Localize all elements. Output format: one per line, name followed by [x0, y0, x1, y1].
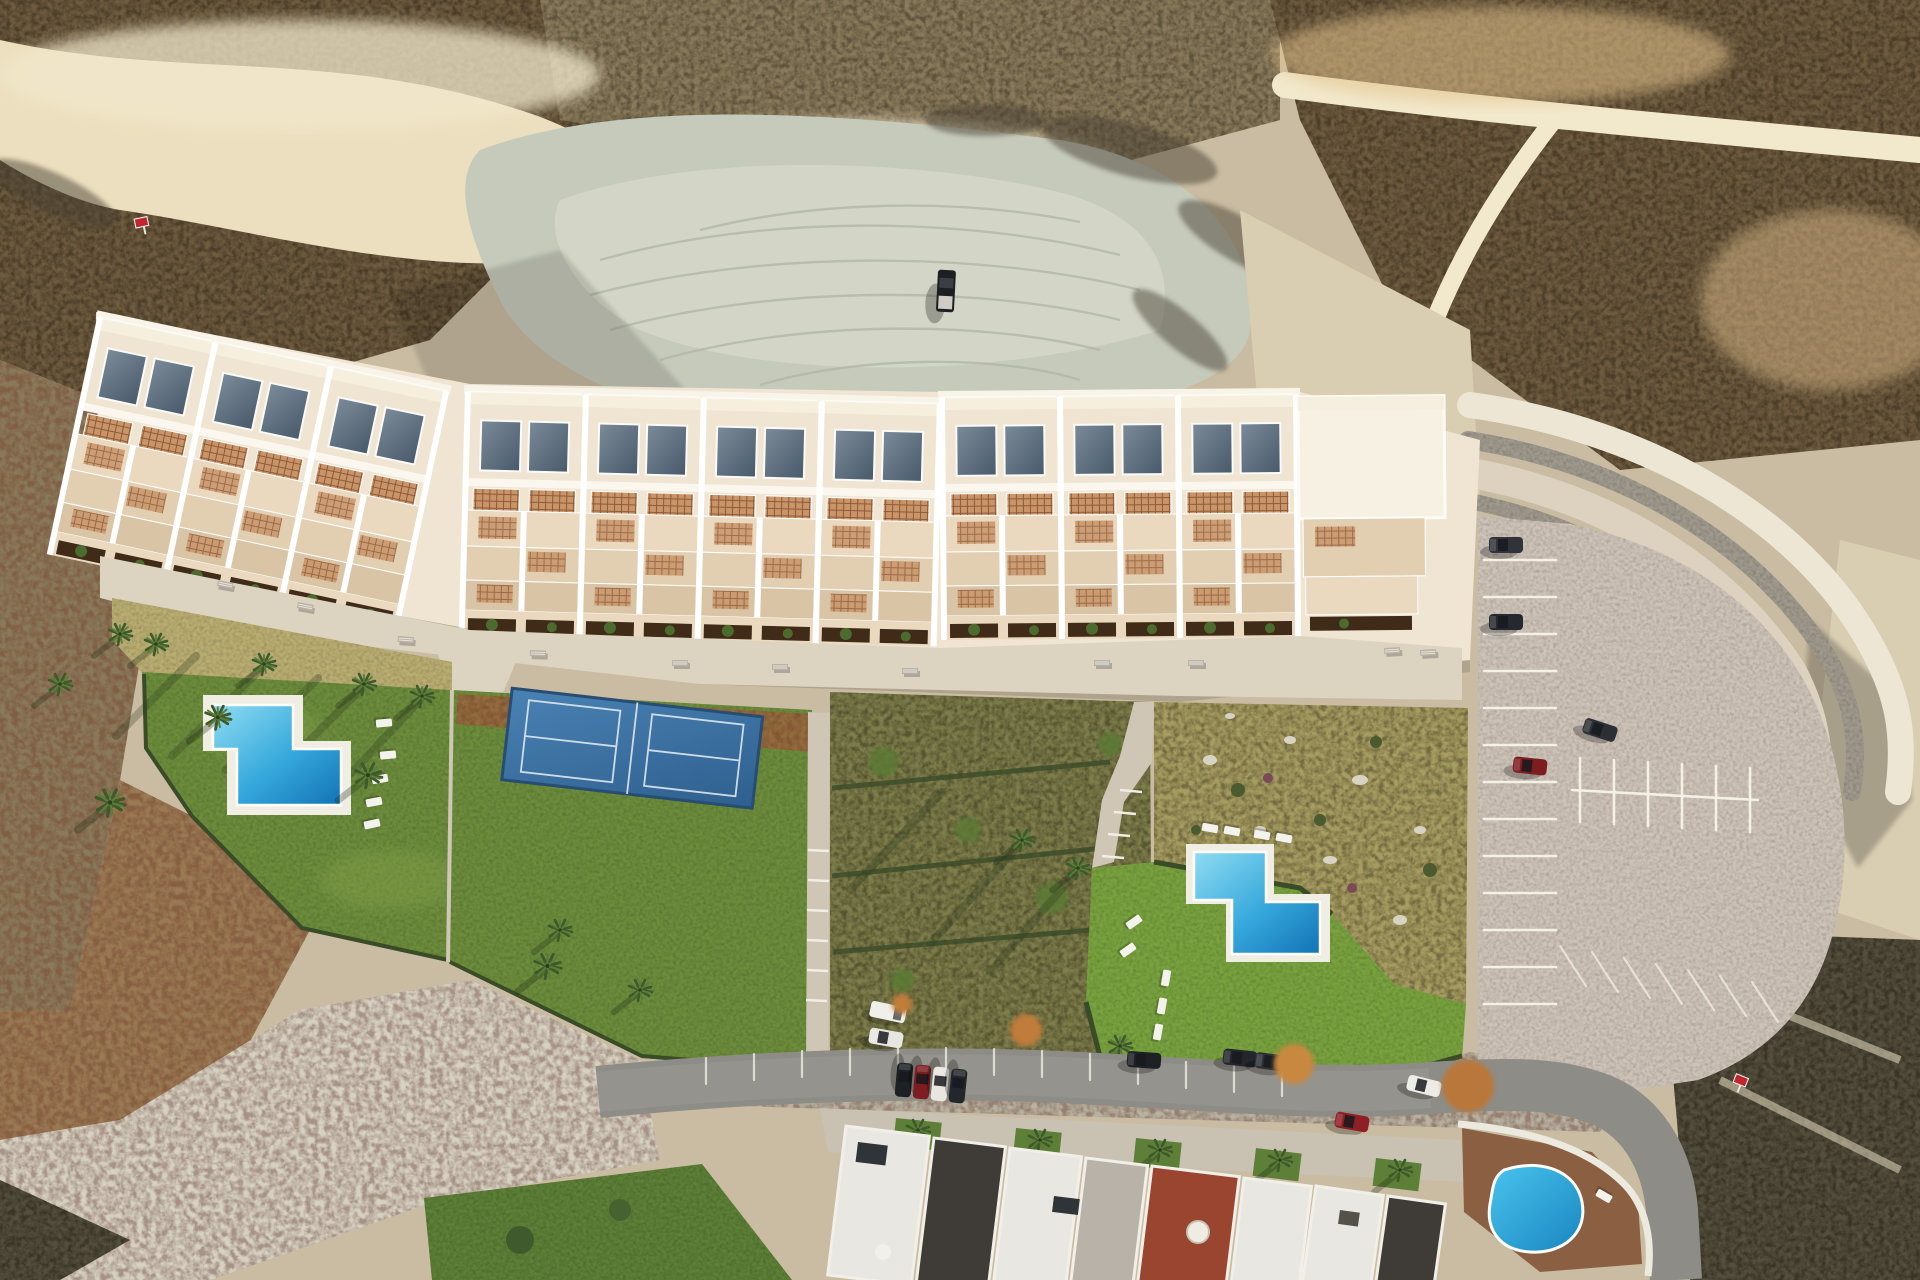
garden-path-west [806, 712, 830, 1070]
aerial-photo-frame: Aerial drone view at dusk of a new hills… [0, 0, 1920, 1280]
sunlit-ridge [0, 20, 600, 130]
rooftop-unit [1338, 1210, 1360, 1227]
bench [672, 660, 690, 669]
aerial-photo: Aerial drone view at dusk of a new hills… [0, 0, 1920, 1280]
bench [772, 664, 790, 673]
apartment-unit [812, 394, 944, 646]
east-block [938, 387, 1446, 640]
tree [506, 1226, 534, 1254]
apartment-unit [1056, 389, 1184, 639]
tree [609, 1199, 631, 1221]
satellite-dish [875, 1244, 891, 1260]
apartment-unit [1174, 388, 1302, 638]
sunlit-scrub [1270, 7, 1730, 103]
sun-lounger [378, 748, 397, 760]
satellite-dome [1187, 1221, 1209, 1243]
bench [1420, 649, 1438, 659]
bench [530, 650, 548, 660]
solar-panel [856, 1142, 888, 1166]
bench [1094, 660, 1112, 669]
bench [397, 636, 416, 646]
bench [1188, 660, 1206, 669]
house-red [1135, 1166, 1240, 1280]
apartment-unit [458, 385, 590, 637]
round-pool-water [1489, 1165, 1583, 1252]
bench [902, 668, 920, 677]
sun-lounger [374, 716, 393, 728]
center-block [458, 385, 944, 646]
solar-panel [1052, 1196, 1080, 1215]
bench [1384, 647, 1402, 657]
